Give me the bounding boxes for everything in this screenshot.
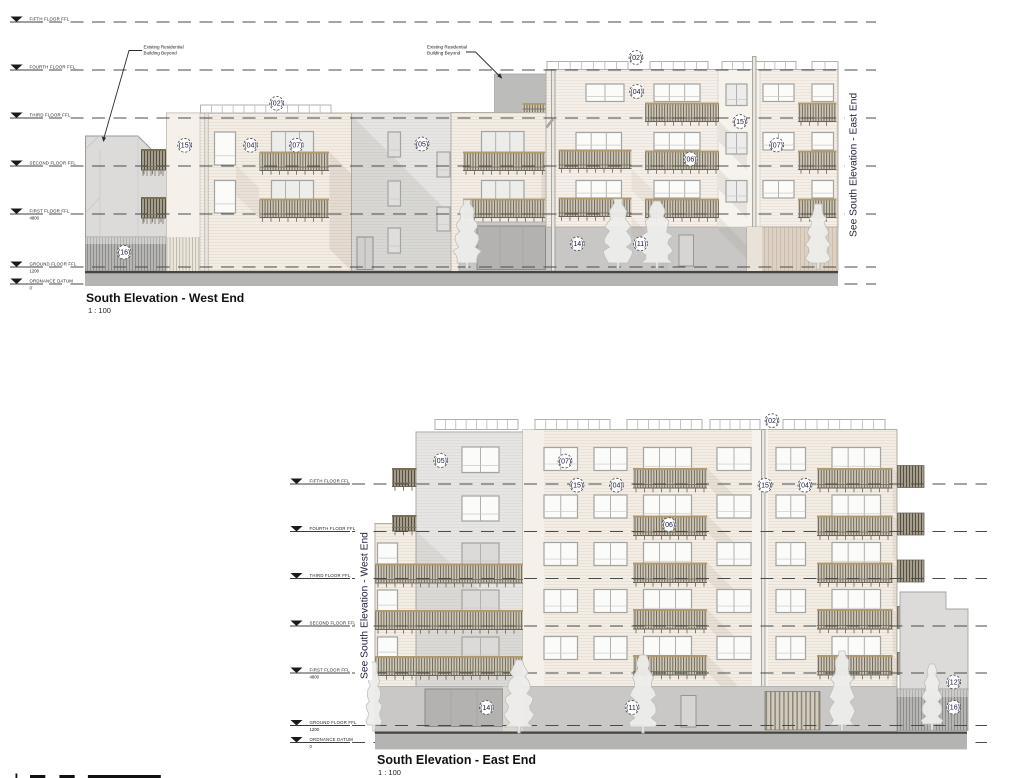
svg-text:FIFTH FLOOR FFL: FIFTH FLOOR FFL	[310, 479, 350, 484]
svg-text:(16): (16)	[118, 250, 130, 257]
svg-text:(14): (14)	[571, 241, 583, 248]
svg-text:South Elevation - West End: South Elevation - West End	[86, 291, 244, 305]
svg-text:SECOND FLOOR FFL: SECOND FLOOR FFL	[30, 161, 77, 166]
svg-text:(04): (04)	[630, 89, 642, 96]
svg-text:(05): (05)	[416, 141, 428, 148]
svg-text:(15): (15)	[734, 119, 746, 126]
svg-text:(04): (04)	[610, 483, 622, 490]
svg-text:Building Beyond: Building Beyond	[427, 51, 461, 56]
svg-text:See South Elevation - East End: See South Elevation - East End	[849, 92, 860, 237]
svg-text:(02): (02)	[630, 55, 642, 62]
svg-text:(05): (05)	[434, 458, 446, 465]
svg-text:(06): (06)	[663, 522, 675, 529]
svg-text:SECOND FLOOR FFL: SECOND FLOOR FFL	[310, 621, 357, 626]
svg-text:FOURTH FLOOR FFL: FOURTH FLOOR FFL	[30, 65, 76, 70]
svg-text:See South Elevation - West End: See South Elevation - West End	[360, 532, 371, 679]
svg-text:1 : 100: 1 : 100	[88, 306, 111, 315]
svg-text:(11): (11)	[626, 705, 638, 712]
svg-text:Existing Residential: Existing Residential	[144, 45, 184, 50]
svg-text:1200: 1200	[30, 269, 40, 274]
svg-text:4800: 4800	[30, 216, 40, 221]
svg-text:THIRD FLOOR FFL: THIRD FLOOR FFL	[30, 113, 71, 118]
svg-text:(07): (07)	[290, 143, 302, 150]
svg-text:(16): (16)	[947, 705, 959, 712]
svg-text:(12): (12)	[947, 679, 959, 686]
svg-text:(15): (15)	[759, 483, 771, 490]
svg-text:Building Beyond: Building Beyond	[144, 51, 178, 56]
svg-text:(07): (07)	[770, 142, 782, 149]
svg-text:(15): (15)	[571, 483, 583, 490]
svg-text:FOURTH FLOOR FFL: FOURTH FLOOR FFL	[310, 526, 356, 531]
svg-text:(02): (02)	[766, 418, 778, 425]
svg-text:ORDNANCE DATUM: ORDNANCE DATUM	[310, 737, 354, 742]
svg-text:(14): (14)	[480, 705, 492, 712]
svg-text:(15): (15)	[178, 143, 190, 150]
svg-text:(04): (04)	[799, 483, 811, 490]
svg-text:(06): (06)	[684, 156, 696, 163]
svg-text:THIRD FLOOR FFL: THIRD FLOOR FFL	[310, 573, 351, 578]
svg-text:(04): (04)	[244, 143, 256, 150]
svg-text:1 : 100: 1 : 100	[378, 768, 401, 777]
svg-text:(11): (11)	[635, 241, 647, 248]
svg-text:ORDNANCE DATUM: ORDNANCE DATUM	[30, 279, 74, 284]
svg-text:Existing Residential: Existing Residential	[427, 45, 467, 50]
svg-text:FIFTH FLOOR FFL: FIFTH FLOOR FFL	[30, 17, 70, 22]
svg-text:1200: 1200	[310, 727, 320, 732]
svg-text:(07): (07)	[559, 458, 571, 465]
svg-text:GROUND FLOOR FFL: GROUND FLOOR FFL	[30, 262, 78, 267]
svg-text:GROUND FLOOR FFL: GROUND FLOOR FFL	[310, 720, 358, 725]
svg-text:4800: 4800	[310, 675, 320, 680]
svg-text:(02): (02)	[270, 101, 282, 108]
svg-text:FIRST FLOOR FFL: FIRST FLOOR FFL	[310, 668, 351, 673]
svg-text:FIRST FLOOR FFL: FIRST FLOOR FFL	[30, 209, 71, 214]
svg-text:South Elevation - East End: South Elevation - East End	[377, 753, 536, 767]
